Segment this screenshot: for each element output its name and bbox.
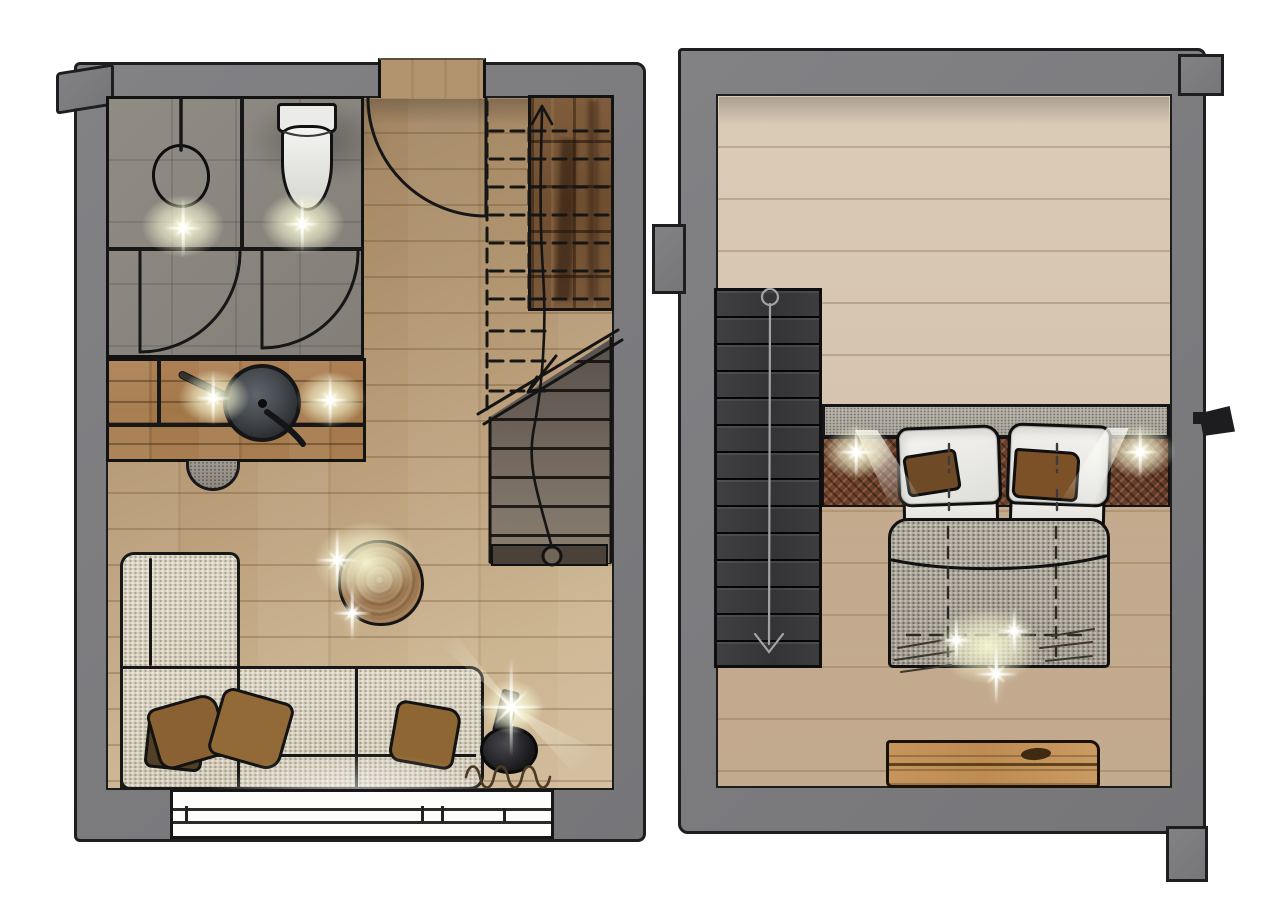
wood-bench [886,740,1100,788]
table-light-glow [296,507,436,617]
bench-seam [889,763,1097,766]
upper-floor-plan [0,0,1280,905]
bench-knot [1021,747,1052,761]
wall-niche [652,224,686,294]
bottom-wall-foot [1166,826,1208,882]
floor-plan-canvas [0,0,1280,905]
wall-shadow [719,97,1169,125]
top-wall-cap [1178,54,1224,96]
bedroom-staircase [714,288,822,668]
